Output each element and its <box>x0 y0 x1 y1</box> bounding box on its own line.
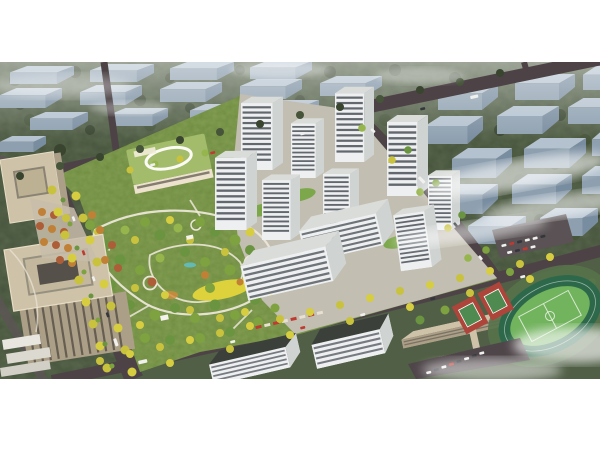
cross-street-topright <box>524 62 528 76</box>
tower <box>387 115 428 196</box>
render-canvas <box>0 0 600 450</box>
park-pond <box>184 263 196 268</box>
tower <box>215 151 257 230</box>
tower <box>291 118 324 178</box>
frame-top-margin <box>0 0 600 62</box>
planted-mound <box>148 278 157 287</box>
aerial-render-image <box>0 0 600 450</box>
render-area <box>0 58 600 388</box>
frame-bottom-margin <box>0 379 600 450</box>
tower <box>335 87 374 162</box>
tower <box>262 174 300 240</box>
